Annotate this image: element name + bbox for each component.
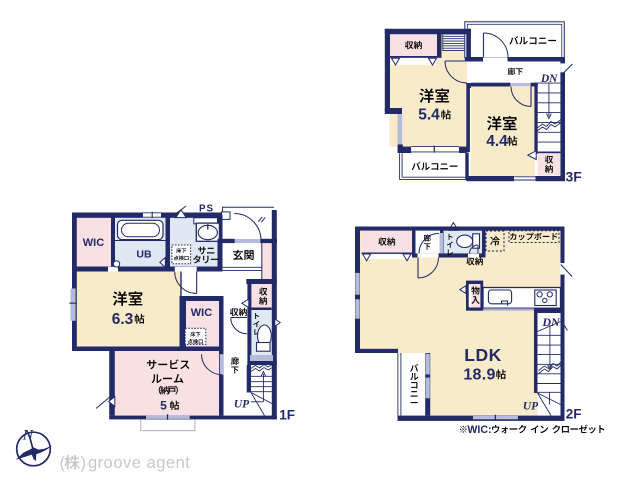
svg-text:UP: UP bbox=[523, 400, 539, 412]
svg-text:N: N bbox=[22, 428, 34, 444]
svg-text:5.4: 5.4 bbox=[418, 107, 440, 124]
svg-text:6.3: 6.3 bbox=[112, 311, 134, 328]
svg-text:1F: 1F bbox=[279, 407, 295, 422]
svg-text:4.4: 4.4 bbox=[486, 133, 508, 150]
svg-text:): ) bbox=[81, 454, 87, 472]
svg-text:18.9: 18.9 bbox=[463, 366, 495, 383]
svg-text:groove agent: groove agent bbox=[88, 454, 190, 472]
svg-text:LDK: LDK bbox=[464, 345, 501, 365]
svg-text:2F: 2F bbox=[566, 407, 582, 422]
svg-text:DN: DN bbox=[541, 315, 561, 329]
svg-text:UP: UP bbox=[234, 398, 250, 410]
svg-text:WIC:: WIC: bbox=[467, 424, 491, 436]
svg-text:(: ( bbox=[60, 454, 66, 472]
svg-text:5: 5 bbox=[160, 399, 167, 413]
svg-text:WIC: WIC bbox=[191, 307, 212, 319]
svg-text:UB: UB bbox=[136, 249, 152, 261]
svg-text:PS: PS bbox=[199, 204, 214, 215]
svg-text:3F: 3F bbox=[566, 168, 583, 184]
svg-text:WIC: WIC bbox=[83, 237, 104, 249]
